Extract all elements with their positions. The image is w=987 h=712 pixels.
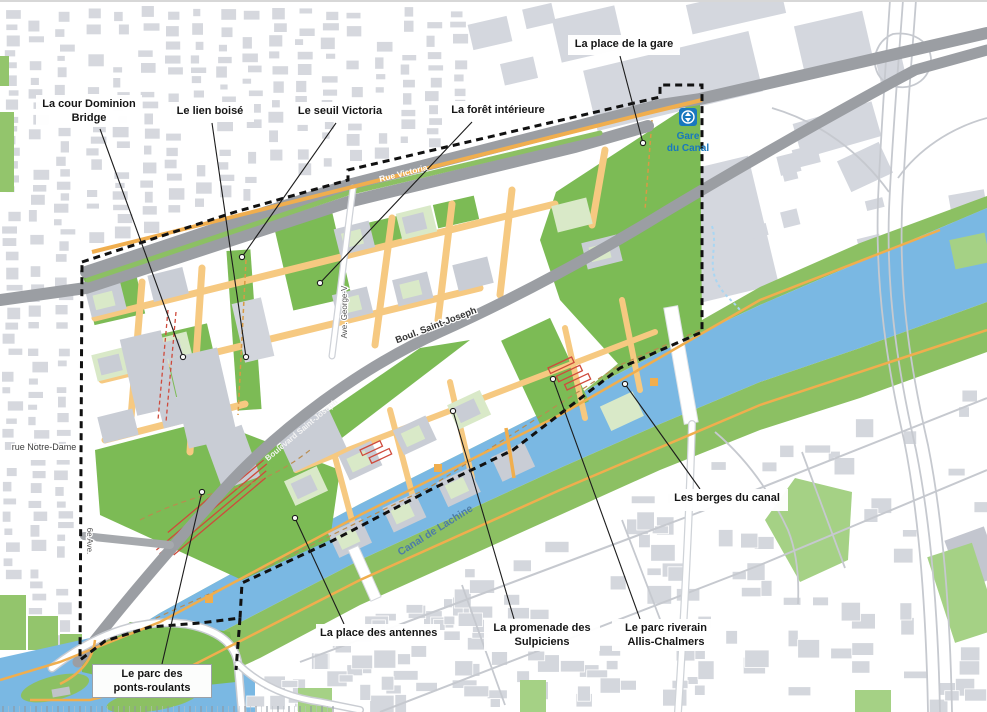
street-notre-dame	[0, 451, 82, 460]
leader-dot-parc-des-ponts-roulants	[199, 489, 204, 494]
leader-dot-lien-boise	[243, 354, 248, 359]
leader-dot-cour-dominion-bridge	[180, 354, 185, 359]
callout-parc-des-ponts-roulants: Le parc desponts-roulants	[92, 664, 212, 698]
station-label-line2: du Canal	[667, 143, 709, 154]
urban-plan-map: Rue VictoriaBoulevard Saint-JosephBoul. …	[0, 0, 987, 712]
callout-seuil-victoria: Le seuil Victoria	[292, 102, 388, 122]
street-label-rue-notre-dame: rue Notre-Dame	[12, 442, 77, 452]
leader-dot-seuil-victoria	[239, 254, 244, 259]
train-station-icon	[679, 108, 697, 126]
leader-dot-place-de-la-gare	[640, 140, 645, 145]
leader-dot-berges-du-canal	[622, 381, 627, 386]
leader-dot-parc-riverain-allis-chalmers	[550, 376, 555, 381]
top-border	[0, 0, 987, 2]
station-label-line1: Gare	[677, 131, 700, 142]
callout-promenade-des-sulpiciens: La promenade desSulpiciens	[484, 619, 600, 651]
leader-dot-place-des-antennes	[292, 515, 297, 520]
callout-place-de-la-gare: La place de la gare	[568, 35, 680, 55]
leader-dot-promenade-des-sulpiciens	[450, 408, 455, 413]
street-label-sixieme-ave: 6e Ave.	[85, 528, 94, 555]
callout-cour-dominion-bridge: La cour DominionBridge	[36, 95, 142, 127]
callout-berges-du-canal: Les berges du canal	[666, 489, 788, 511]
leader-dot-foret-interieure	[317, 280, 322, 285]
callout-parc-riverain-allis-chalmers: Le parc riverainAllis-Chalmers	[612, 619, 720, 651]
street-label-ave-george-v: Ave. George-V	[340, 285, 349, 338]
callout-foret-interieure: La forêt intérieure	[446, 101, 550, 121]
callout-place-des-antennes: La place des antennes	[316, 624, 440, 646]
clipped-caption-fragment	[2, 706, 337, 712]
callout-lien-boise: Le lien boisé	[166, 102, 254, 122]
